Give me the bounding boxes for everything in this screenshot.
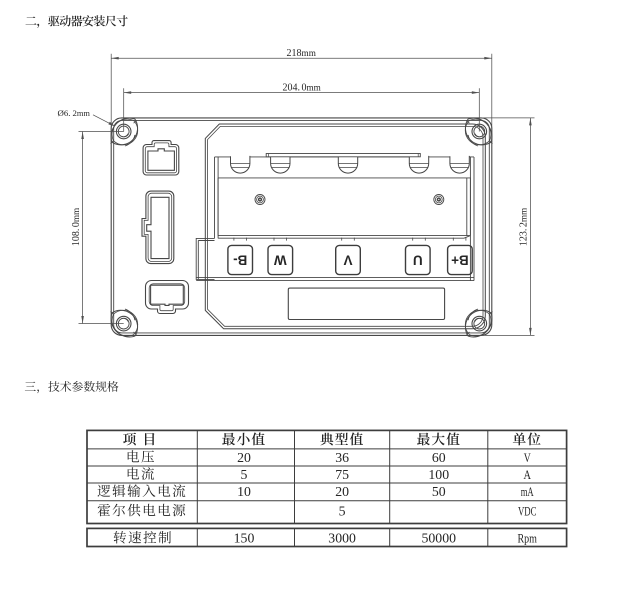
svg-text:B-: B- bbox=[233, 252, 247, 267]
svg-text:36: 36 bbox=[335, 450, 349, 465]
svg-text:mA: mA bbox=[521, 485, 534, 499]
svg-text:5: 5 bbox=[339, 503, 346, 518]
svg-text:108.0mm: 108.0mm bbox=[71, 208, 82, 246]
svg-text:60: 60 bbox=[432, 450, 446, 465]
svg-text:U: U bbox=[413, 252, 423, 267]
svg-text:B+: B+ bbox=[451, 252, 469, 267]
svg-text:10: 10 bbox=[237, 484, 251, 499]
svg-text:204.0mm: 204.0mm bbox=[282, 82, 320, 93]
svg-text:5: 5 bbox=[241, 467, 248, 482]
svg-text:150: 150 bbox=[234, 531, 255, 546]
svg-text:Rpm: Rpm bbox=[517, 532, 537, 546]
svg-text:20: 20 bbox=[237, 450, 251, 465]
svg-text:A: A bbox=[523, 468, 531, 482]
svg-text:3000: 3000 bbox=[328, 531, 356, 546]
svg-text:50000: 50000 bbox=[422, 531, 457, 546]
svg-text:218mm: 218mm bbox=[287, 48, 316, 59]
svg-text:50: 50 bbox=[432, 484, 446, 499]
svg-text:V: V bbox=[343, 252, 352, 267]
svg-text:W: W bbox=[274, 252, 287, 267]
svg-text:75: 75 bbox=[335, 467, 349, 482]
svg-text:20: 20 bbox=[335, 484, 349, 499]
svg-text:Ø6.2mm: Ø6.2mm bbox=[58, 108, 91, 118]
svg-text:100: 100 bbox=[428, 467, 449, 482]
svg-text:123.2mm: 123.2mm bbox=[519, 208, 530, 246]
svg-text:VDC: VDC bbox=[518, 504, 537, 518]
svg-text:V: V bbox=[524, 451, 531, 465]
